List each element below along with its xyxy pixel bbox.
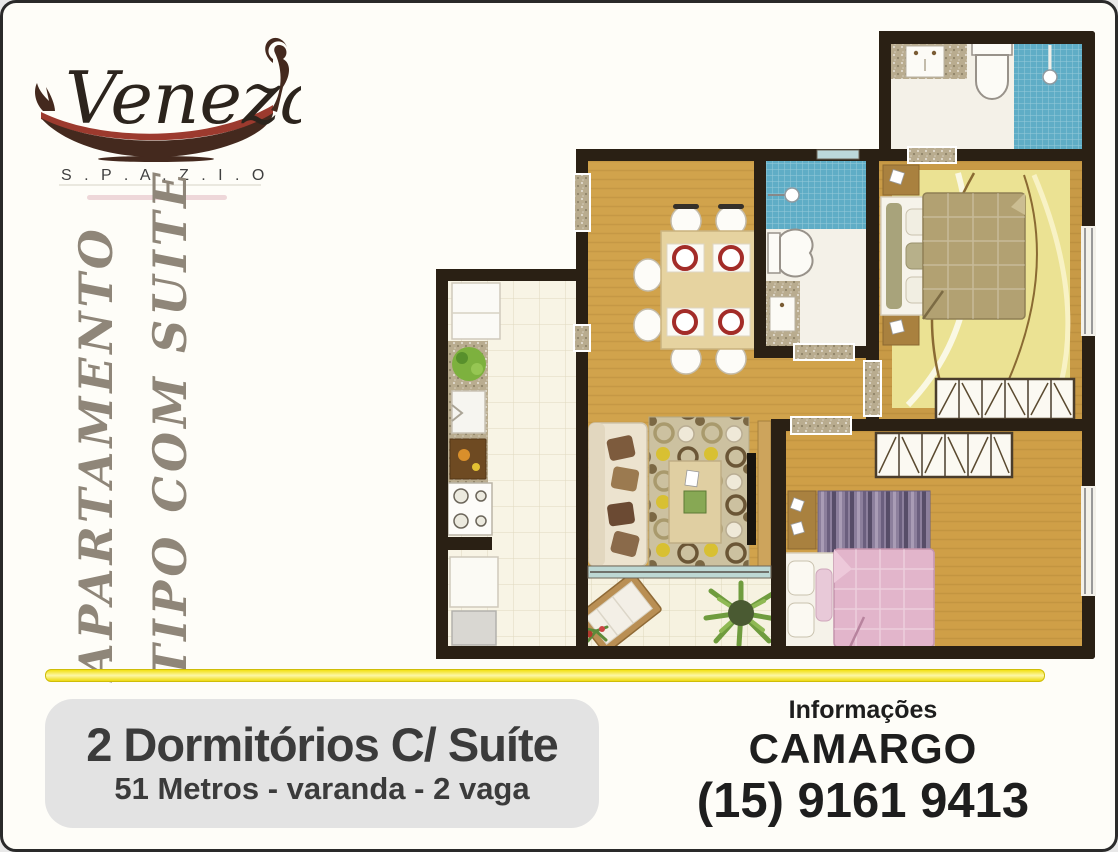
pink-blanket xyxy=(834,549,934,647)
nightstand xyxy=(788,491,816,549)
wardrobe xyxy=(936,379,1074,419)
suite-window xyxy=(1081,226,1096,336)
plate xyxy=(674,247,696,269)
toilet-tank xyxy=(768,233,780,273)
shower-head xyxy=(1043,70,1057,84)
bedroom-door xyxy=(791,417,851,434)
dining-chair xyxy=(634,309,662,341)
bathroom-window xyxy=(817,150,859,159)
bedroom-window xyxy=(1081,486,1096,596)
stove xyxy=(448,483,492,535)
side-label-tipo-com-suite: TIPO COM SUITE xyxy=(147,169,193,679)
table-plant xyxy=(684,491,706,513)
contact-name: CAMARGO xyxy=(639,725,1087,773)
laundry-tank xyxy=(450,557,498,607)
yellow-divider xyxy=(45,669,1045,682)
kitchen-pass-door xyxy=(574,325,590,351)
plate xyxy=(720,247,742,269)
kitchen-plant xyxy=(452,347,486,381)
fridge xyxy=(452,283,500,339)
toilet xyxy=(780,230,813,277)
burner xyxy=(454,514,468,528)
offer-details: 51 Metros - varanda - 2 vaga xyxy=(45,771,599,807)
wardrobe xyxy=(876,433,1012,477)
real-estate-flyer: Veneza S . P . A . Z . I . O APARTAMENTO… xyxy=(0,0,1118,852)
contact-block: Informações CAMARGO (15) 9161 9413 xyxy=(639,695,1087,830)
pillow xyxy=(788,561,814,595)
room-hallway xyxy=(760,358,879,419)
burner xyxy=(454,489,468,503)
living-set xyxy=(589,417,771,573)
suite-door xyxy=(864,361,881,416)
tv xyxy=(747,453,756,545)
burner xyxy=(476,516,486,526)
offer-title: 2 Dormitórios C/ Suíte xyxy=(45,720,599,771)
offer-box: 2 Dormitórios C/ Suíte 51 Metros - varan… xyxy=(45,699,599,828)
brand-name: Veneza xyxy=(65,56,301,140)
toilet xyxy=(976,55,1008,99)
suite-blanket xyxy=(923,193,1025,319)
pillow xyxy=(816,569,832,621)
bathroom-door xyxy=(794,344,854,360)
plate xyxy=(720,311,742,333)
entrance-door xyxy=(574,174,590,231)
kitchen-sink xyxy=(452,391,485,433)
shower-head xyxy=(785,188,799,202)
side-label-apartamento: APARTAMENTO xyxy=(73,225,119,679)
contact-phone: (15) 9161 9413 xyxy=(639,773,1087,829)
floor-plan xyxy=(436,13,1098,665)
bed-runner xyxy=(886,203,902,309)
pillow xyxy=(788,603,814,637)
contact-heading: Informações xyxy=(639,695,1087,725)
washer xyxy=(452,611,496,645)
sofa-pillow xyxy=(607,501,636,526)
sofa-pillow xyxy=(610,466,639,492)
dining-chair xyxy=(634,259,662,291)
burner xyxy=(476,491,486,501)
plate xyxy=(674,311,696,333)
toilet-tank xyxy=(972,43,1012,55)
suite-bathroom-door xyxy=(908,147,956,163)
tv-cabinet xyxy=(758,421,771,571)
